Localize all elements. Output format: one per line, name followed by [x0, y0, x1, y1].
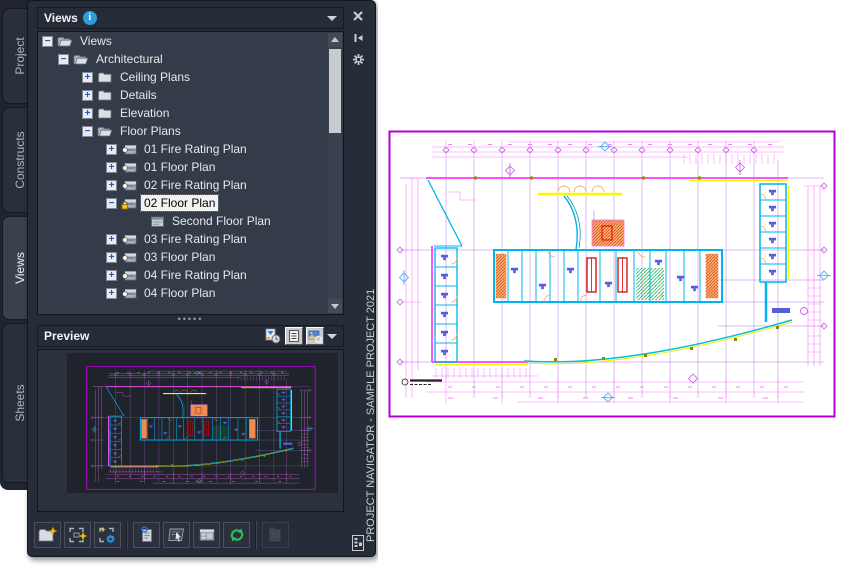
folder-icon: [97, 71, 113, 84]
expand-icon[interactable]: +: [82, 90, 93, 101]
tree-scrollbar[interactable]: [328, 33, 342, 313]
toolbar-separator: [255, 521, 257, 549]
preview-pane: [37, 349, 344, 512]
palette-toolbar: [34, 521, 289, 549]
expand-icon[interactable]: +: [106, 288, 117, 299]
tree-item-01-fire-rating-plan[interactable]: + 01 Fire Rating Plan: [38, 140, 343, 158]
floorplan-drawing: [388, 130, 836, 418]
scroll-up-button[interactable]: [328, 33, 342, 47]
scrollbar-thumb[interactable]: [329, 49, 341, 133]
expand-icon[interactable]: +: [106, 162, 117, 173]
preview-title: Preview: [44, 329, 89, 343]
tree-item-03-floor-plan[interactable]: + 03 Floor Plan: [38, 248, 343, 266]
tree-item-03-fire-rating-plan[interactable]: + 03 Fire Rating Plan: [38, 230, 343, 248]
preview-viewport: [67, 353, 338, 493]
folder-open-icon: [57, 35, 73, 48]
folder-icon: [97, 89, 113, 102]
drawing-canvas[interactable]: [378, 0, 849, 568]
details-list-icon[interactable]: [285, 327, 303, 345]
expand-icon[interactable]: +: [82, 72, 93, 83]
expand-icon[interactable]: +: [106, 180, 117, 191]
expand-icon[interactable]: +: [106, 270, 117, 281]
application-window: { "palette": { "title": "Views", "vertic…: [0, 0, 849, 568]
panel-grid-icon[interactable]: [193, 522, 220, 548]
view-locked-icon: [121, 197, 137, 210]
tree-item-floor-plans[interactable]: − Floor Plans: [38, 122, 343, 140]
view-icon: [121, 143, 137, 156]
tree-item-01-floor-plan[interactable]: + 01 Floor Plan: [38, 158, 343, 176]
preview-image-icon[interactable]: [306, 327, 324, 345]
expand-icon[interactable]: +: [106, 234, 117, 245]
tree-item-second-floor-plan[interactable]: Second Floor Plan: [38, 212, 343, 230]
expand-icon[interactable]: +: [106, 144, 117, 155]
preview-header: Preview: [37, 325, 344, 347]
collapse-icon[interactable]: −: [82, 126, 93, 137]
tree-item-02-floor-plan[interactable]: − 02 Floor Plan: [38, 194, 343, 212]
collapse-icon[interactable]: −: [106, 198, 117, 209]
selection-star-icon[interactable]: [64, 522, 91, 548]
pane-title: Views: [44, 11, 78, 25]
palette-side-strip: PROJECT NAVIGATOR - SAMPLE PROJECT 2021: [343, 1, 375, 556]
tree-item-elevation[interactable]: + Elevation: [38, 104, 343, 122]
close-icon[interactable]: [352, 9, 366, 23]
expand-icon[interactable]: +: [106, 252, 117, 263]
view-icon: [121, 269, 137, 282]
tree-item-architectural[interactable]: − Architectural: [38, 50, 343, 68]
splitter-handle[interactable]: •••••: [37, 315, 344, 325]
folder-icon: [97, 107, 113, 120]
sheet-icon: [149, 215, 165, 228]
folder-star-icon[interactable]: [34, 522, 61, 548]
scroll-down-button[interactable]: [328, 299, 342, 313]
preview-clock-icon[interactable]: [264, 327, 282, 345]
auto-hide-pin-icon[interactable]: [352, 31, 366, 45]
info-icon[interactable]: i: [83, 11, 97, 25]
tree-item-04-fire-rating-plan[interactable]: + 04 Fire Rating Plan: [38, 266, 343, 284]
view-tree: − Views − Architectural + Ceiling Plans …: [37, 31, 344, 315]
palette-mini-icon[interactable]: [352, 535, 366, 553]
document-clip-icon[interactable]: [133, 522, 160, 548]
tree-item-04-floor-plan[interactable]: + 04 Floor Plan: [38, 284, 343, 302]
dropdown-caret-icon[interactable]: [327, 16, 337, 21]
project-navigator-palette: Views i − Views − Architectural + Ceilin…: [27, 0, 376, 557]
tree-item-details[interactable]: + Details: [38, 86, 343, 104]
refresh-arrows-icon[interactable]: [223, 522, 250, 548]
view-icon: [121, 287, 137, 300]
tree-item-02-fire-rating-plan[interactable]: + 02 Fire Rating Plan: [38, 176, 343, 194]
expand-icon[interactable]: +: [82, 108, 93, 119]
selection-gear-icon[interactable]: [94, 522, 121, 548]
folder-open-icon: [97, 125, 113, 138]
view-icon: [121, 233, 137, 246]
preview-floorplan: [86, 366, 316, 490]
toolbar-separator: [126, 521, 128, 549]
board-cursor-icon[interactable]: [163, 522, 190, 548]
dropdown-caret-icon[interactable]: [327, 334, 337, 339]
folder-open-icon: [73, 53, 89, 66]
properties-gear-icon[interactable]: [352, 53, 366, 67]
collapse-icon[interactable]: −: [42, 36, 53, 47]
views-titlebar: Views i: [37, 7, 344, 29]
tree-item-ceiling-plans[interactable]: + Ceiling Plans: [38, 68, 343, 86]
panel-clip-disabled-icon: [262, 522, 289, 548]
view-icon: [121, 161, 137, 174]
collapse-icon[interactable]: −: [58, 54, 69, 65]
view-icon: [121, 251, 137, 264]
view-icon: [121, 179, 137, 192]
tree-item-views[interactable]: − Views: [38, 32, 343, 50]
